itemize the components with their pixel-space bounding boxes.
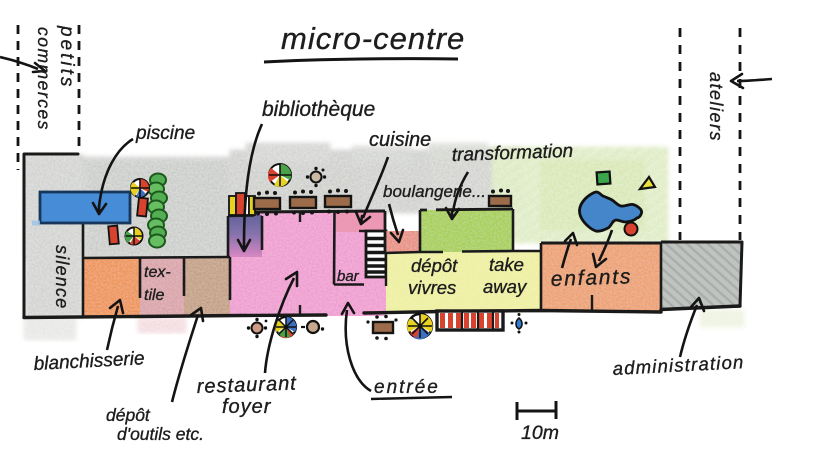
svg-text:bar: bar [337, 268, 360, 285]
svg-text:tex-: tex- [144, 264, 171, 281]
svg-text:take: take [489, 254, 524, 275]
svg-text:10m: 10m [521, 422, 559, 444]
svg-text:dépôt: dépôt [106, 405, 151, 425]
svg-text:entrée: entrée [374, 377, 440, 398]
svg-text:d'outils etc.: d'outils etc. [117, 424, 204, 444]
svg-text:micro-centre: micro-centre [281, 21, 465, 56]
svg-text:commerces: commerces [34, 27, 54, 131]
svg-text:cuisine: cuisine [369, 129, 431, 151]
svg-text:dépôt: dépôt [411, 255, 458, 276]
svg-text:restaurant: restaurant [196, 373, 297, 398]
svg-text:tile: tile [144, 287, 165, 304]
svg-text:petits: petits [56, 25, 77, 89]
svg-text:enfants: enfants [550, 265, 632, 291]
svg-text:bibliothèque: bibliothèque [262, 98, 375, 121]
svg-text:foyer: foyer [222, 396, 272, 418]
svg-text:vivres: vivres [408, 277, 456, 298]
svg-text:silence: silence [52, 245, 72, 309]
svg-text:away: away [483, 276, 528, 297]
svg-text:transformation: transformation [451, 141, 573, 166]
svg-text:ateliers: ateliers [706, 72, 726, 142]
svg-text:boulangerie...: boulangerie... [383, 182, 486, 201]
svg-text:piscine: piscine [135, 123, 195, 144]
